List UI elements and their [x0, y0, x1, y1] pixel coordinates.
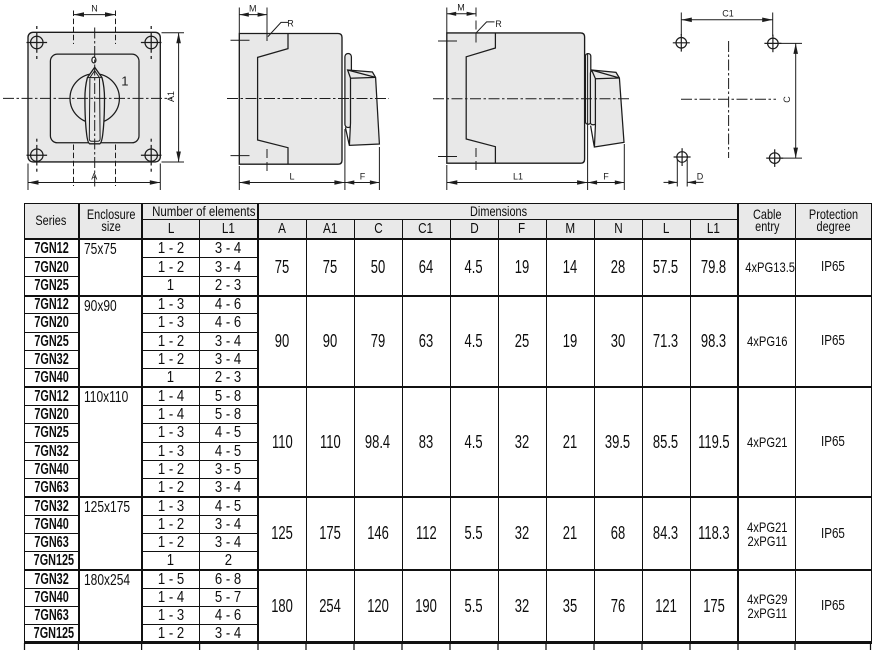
svg-text:M: M [457, 3, 465, 13]
svg-text:M: M [249, 3, 257, 13]
svg-text:D: D [697, 172, 704, 182]
svg-text:A1: A1 [166, 91, 176, 102]
svg-text:R: R [287, 19, 294, 29]
svg-text:F: F [603, 171, 609, 181]
svg-text:L: L [289, 171, 294, 181]
svg-text:N: N [91, 3, 98, 13]
svg-text:C: C [782, 96, 792, 103]
svg-text:1: 1 [121, 74, 128, 89]
svg-text:L1: L1 [513, 171, 523, 181]
svg-text:R: R [495, 19, 502, 29]
svg-text:C1: C1 [722, 9, 734, 19]
svg-text:F: F [360, 171, 366, 181]
svg-text:A: A [91, 171, 97, 181]
